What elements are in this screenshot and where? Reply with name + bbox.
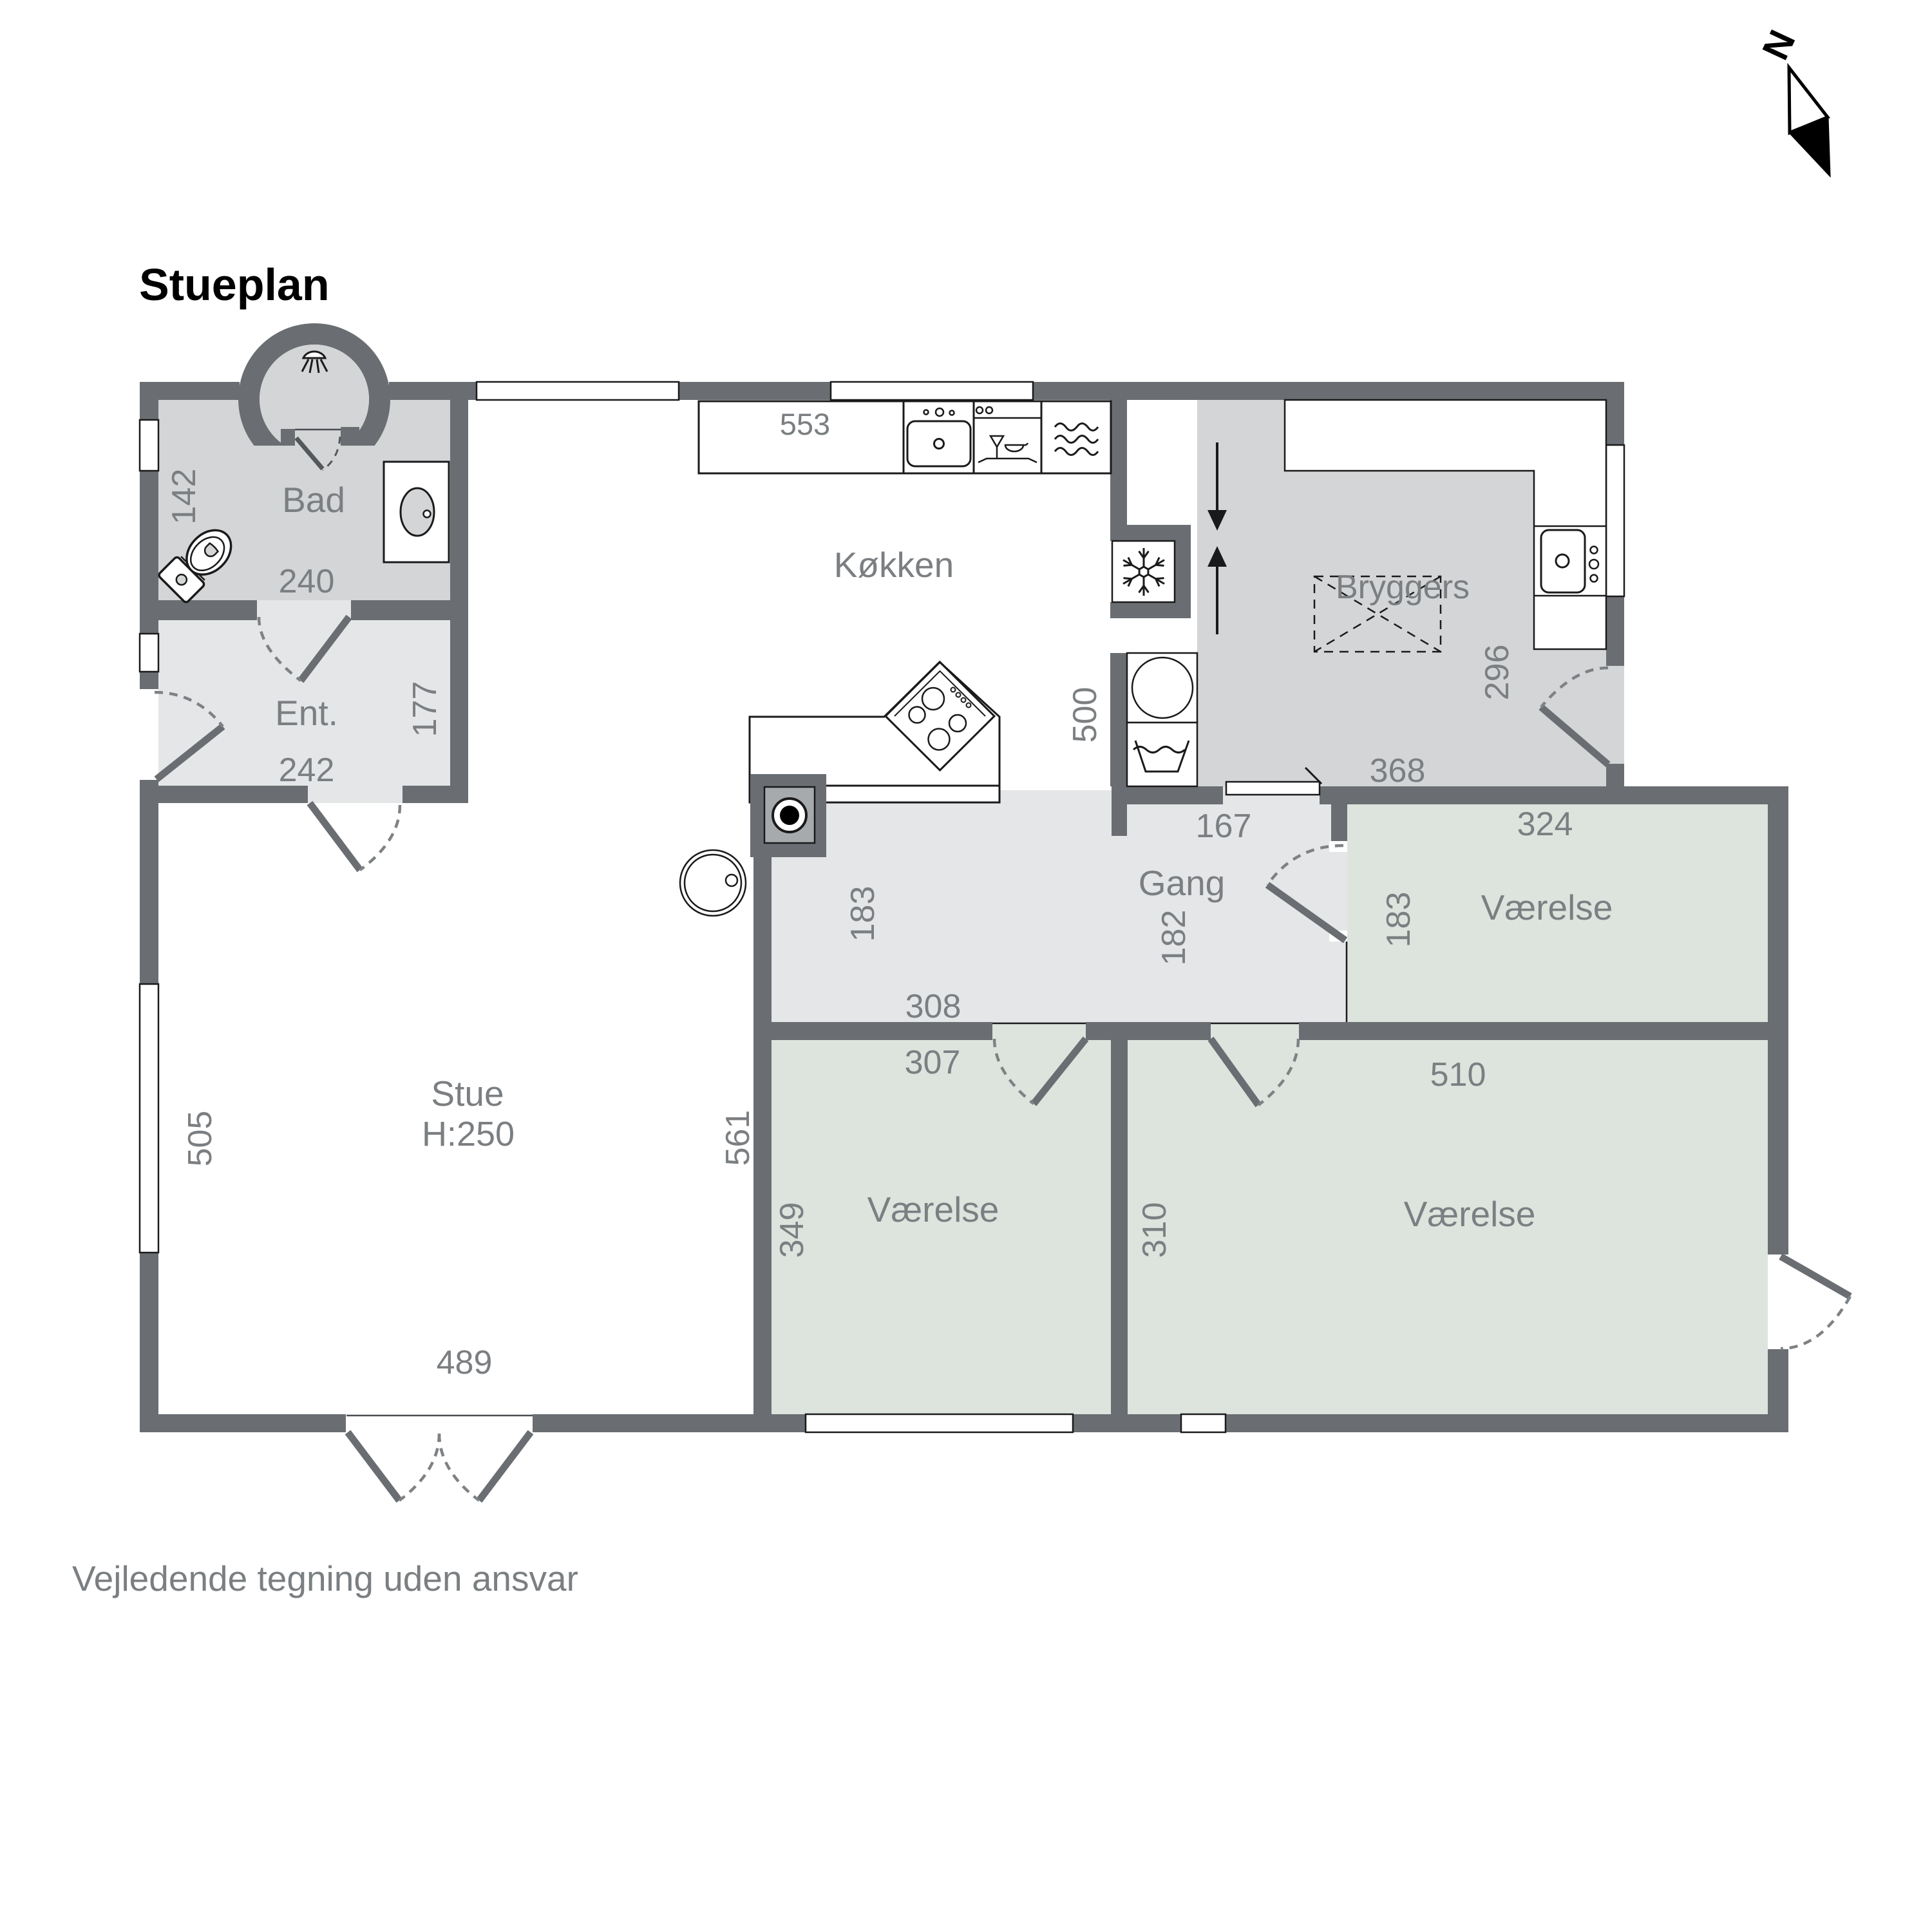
svg-text:Værelse: Værelse [1404, 1194, 1536, 1234]
svg-text:Bad: Bad [282, 480, 345, 520]
svg-text:553: 553 [780, 407, 830, 441]
svg-text:182: 182 [1155, 910, 1193, 966]
svg-text:Værelse: Værelse [867, 1189, 999, 1229]
svg-text:Køkken: Køkken [834, 545, 954, 585]
svg-text:Bryggers: Bryggers [1336, 569, 1470, 606]
svg-text:Ent.: Ent. [275, 693, 338, 733]
svg-text:561: 561 [719, 1110, 757, 1166]
svg-text:240: 240 [279, 563, 335, 600]
svg-text:308: 308 [905, 988, 961, 1025]
svg-text:Værelse: Værelse [1481, 887, 1613, 927]
svg-text:500: 500 [1066, 687, 1104, 743]
svg-text:349: 349 [773, 1202, 811, 1258]
svg-text:324: 324 [1517, 806, 1573, 843]
svg-text:307: 307 [905, 1044, 961, 1081]
svg-text:183: 183 [1380, 892, 1417, 948]
svg-text:489: 489 [437, 1344, 493, 1381]
svg-text:183: 183 [844, 886, 882, 942]
svg-text:Stueplan: Stueplan [139, 260, 330, 310]
svg-text:Vejledende tegning uden ansvar: Vejledende tegning uden ansvar [72, 1558, 578, 1598]
svg-text:310: 310 [1136, 1202, 1173, 1258]
svg-text:142: 142 [166, 469, 203, 525]
svg-text:510: 510 [1430, 1056, 1486, 1094]
svg-text:296: 296 [1479, 645, 1516, 701]
svg-text:177: 177 [406, 681, 444, 737]
svg-text:H:250: H:250 [422, 1115, 515, 1153]
svg-text:Stue: Stue [431, 1074, 504, 1113]
svg-text:167: 167 [1196, 808, 1252, 845]
svg-text:368: 368 [1370, 752, 1426, 790]
svg-text:242: 242 [279, 752, 335, 789]
svg-text:505: 505 [182, 1111, 219, 1167]
svg-text:Gang: Gang [1139, 863, 1226, 903]
